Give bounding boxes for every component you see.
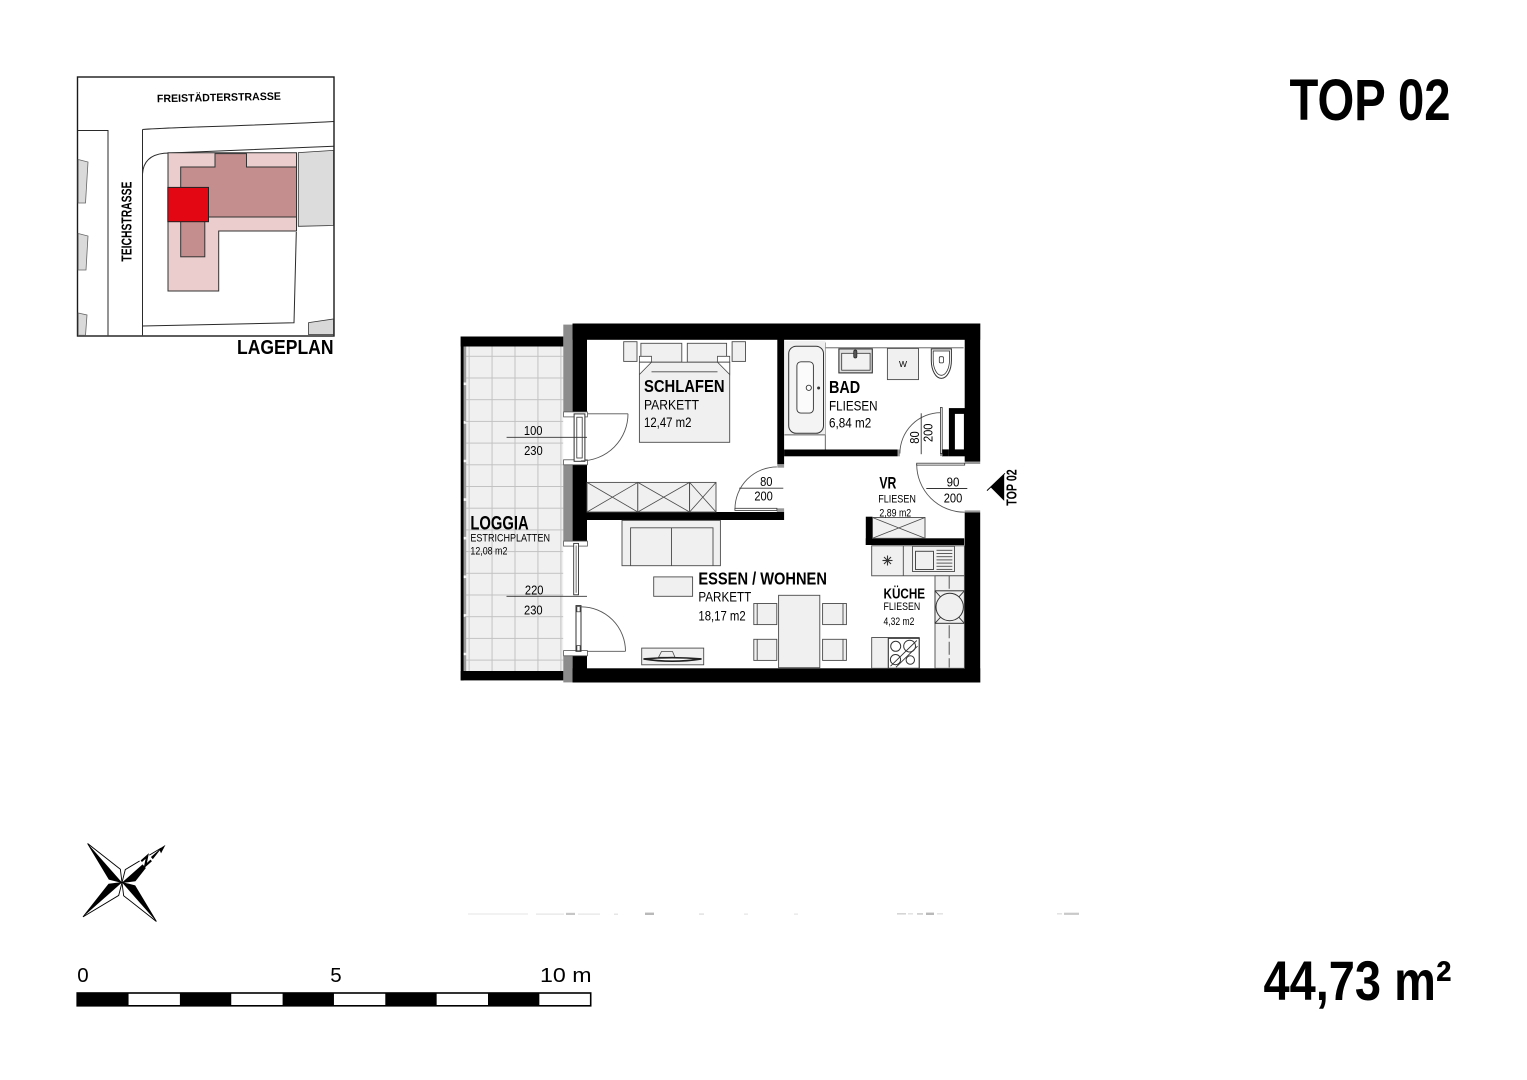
svg-text:80: 80 [908,431,922,443]
svg-text:200: 200 [754,489,773,503]
svg-text:W: W [899,359,907,369]
svg-text:2,89 m2: 2,89 m2 [879,508,911,520]
svg-text:100: 100 [524,424,543,438]
svg-text:FLIESEN: FLIESEN [884,601,921,613]
svg-text:90: 90 [947,475,960,489]
svg-text:10 m: 10 m [540,964,592,987]
svg-text:5: 5 [330,964,341,987]
svg-text:12,08 m2: 12,08 m2 [470,546,507,558]
svg-text:TOP 02: TOP 02 [1004,469,1021,506]
svg-text:TOP 02: TOP 02 [1290,68,1451,133]
svg-text:PARKETT: PARKETT [644,396,699,412]
svg-text:44,73 m²: 44,73 m² [1264,949,1452,1012]
svg-text:ESSEN / WOHNEN: ESSEN / WOHNEN [698,569,827,589]
svg-text:6,84 m2: 6,84 m2 [829,415,871,431]
svg-text:FLIESEN: FLIESEN [829,397,878,413]
svg-text:12,47 m2: 12,47 m2 [644,414,692,430]
svg-text:PARKETT: PARKETT [698,589,751,605]
svg-text:200: 200 [922,424,936,443]
svg-text:VR: VR [879,474,896,492]
svg-text:18,17 m2: 18,17 m2 [698,608,745,624]
svg-text:4,32 m2: 4,32 m2 [884,616,915,628]
svg-text:230: 230 [524,444,543,458]
svg-text:FLIESEN: FLIESEN [878,494,916,506]
svg-text:LAGEPLAN: LAGEPLAN [237,337,334,359]
svg-text:80: 80 [760,475,772,489]
svg-text:ESTRICHPLATTEN: ESTRICHPLATTEN [470,533,550,545]
svg-text:KÜCHE: KÜCHE [884,585,926,602]
svg-text:TEICHSTRASSE: TEICHSTRASSE [120,181,136,261]
svg-text:230: 230 [524,604,543,618]
svg-text:220: 220 [525,583,544,597]
svg-text:FREISTÄDTERSTRASSE: FREISTÄDTERSTRASSE [157,90,281,106]
svg-text:SCHLAFEN: SCHLAFEN [644,376,725,396]
svg-text:200: 200 [944,492,963,506]
svg-text:0: 0 [77,964,88,987]
svg-text:BAD: BAD [829,377,860,397]
svg-text:LOGGIA: LOGGIA [470,514,529,535]
